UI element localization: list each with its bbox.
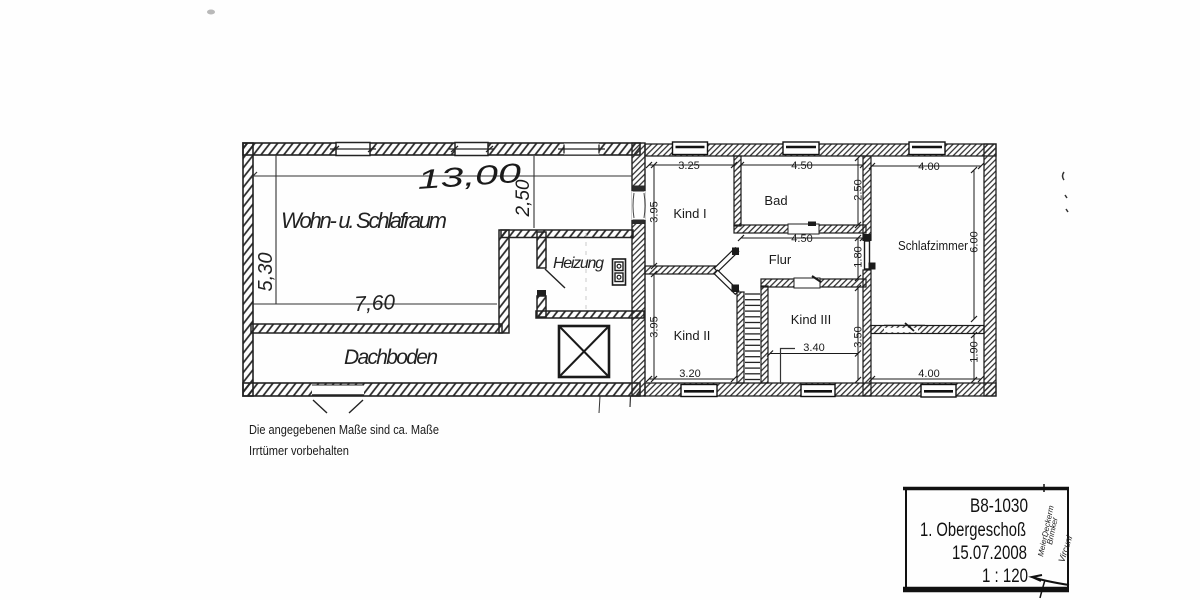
svg-text:3.95: 3.95 — [649, 201, 661, 222]
svg-text:1.90: 1.90 — [969, 341, 981, 362]
svg-text:1.80: 1.80 — [853, 246, 865, 267]
svg-text:Kind II: Kind II — [674, 328, 711, 343]
svg-text:15.07.2008: 15.07.2008 — [952, 543, 1027, 564]
svg-text:Die angegebenen Maße sind ca.: Die angegebenen Maße sind ca. Maße — [249, 423, 439, 437]
svg-text:4.00: 4.00 — [918, 368, 939, 380]
svg-text:7,60: 7,60 — [354, 291, 396, 316]
svg-text:B8-1030: B8-1030 — [970, 496, 1028, 517]
svg-text:Schlafzimmer: Schlafzimmer — [898, 238, 969, 253]
svg-text:1. Obergeschoß: 1. Obergeschoß — [920, 520, 1026, 541]
svg-text:2,50: 2,50 — [513, 179, 534, 217]
svg-text:4.50: 4.50 — [791, 160, 812, 172]
svg-text:1 : 120: 1 : 120 — [982, 566, 1028, 587]
svg-text:Flur: Flur — [769, 252, 792, 267]
svg-text:3.50: 3.50 — [853, 326, 865, 347]
svg-text:Kind I: Kind I — [673, 206, 706, 221]
svg-text:Bad: Bad — [764, 193, 787, 208]
svg-text:3.40: 3.40 — [803, 342, 824, 354]
svg-text:3.95: 3.95 — [649, 316, 661, 337]
svg-text:6.00: 6.00 — [969, 231, 981, 252]
svg-text:Irrtümer vorbehalten: Irrtümer vorbehalten — [249, 444, 349, 458]
svg-text:Wohn- u. Schlafraum: Wohn- u. Schlafraum — [281, 208, 447, 233]
svg-text:2.50: 2.50 — [853, 179, 865, 200]
svg-text:Heizung: Heizung — [553, 255, 604, 272]
svg-text:Kind III: Kind III — [791, 312, 831, 327]
svg-text:4.50: 4.50 — [791, 233, 812, 245]
svg-text:4.00: 4.00 — [918, 161, 939, 173]
svg-text:3.25: 3.25 — [678, 160, 699, 172]
svg-text:3.20: 3.20 — [679, 368, 700, 380]
svg-text:5,30: 5,30 — [255, 253, 277, 292]
svg-text:Dachboden: Dachboden — [344, 346, 438, 369]
